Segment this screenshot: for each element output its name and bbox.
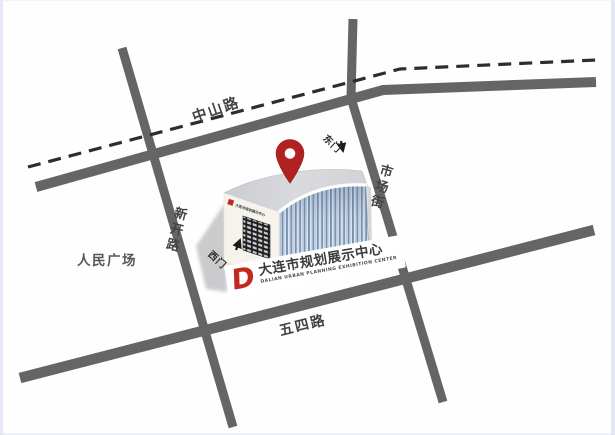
building-shadow (196, 203, 227, 292)
logo-d-icon: D (231, 264, 255, 294)
map-canvas: 大连市规划展示中心 (0, 0, 615, 435)
location-map: 大连市规划展示中心 中山路 市场街 新开路 五四路 人民广场 东门 西门 D 大… (0, 0, 615, 435)
label-peoples-square: 人民广场 (77, 249, 137, 269)
